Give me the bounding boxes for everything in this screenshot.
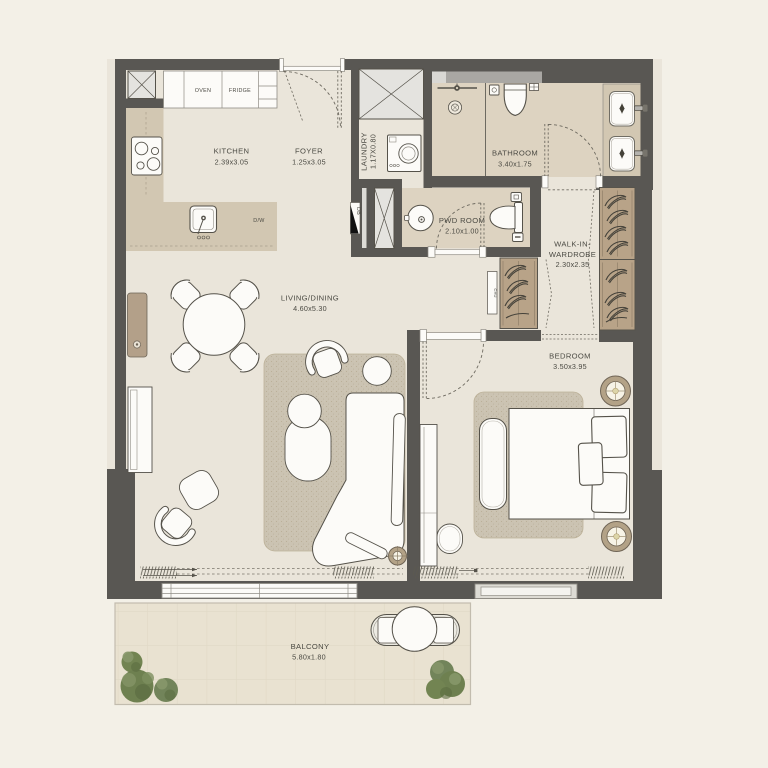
svg-text:KITCHEN: KITCHEN xyxy=(214,147,250,156)
svg-text:WARDROBE: WARDROBE xyxy=(549,250,596,259)
svg-text:LIVING/DINING: LIVING/DINING xyxy=(281,294,339,303)
svg-text:3.40x1.75: 3.40x1.75 xyxy=(498,160,532,169)
svg-text:1.17X0.80: 1.17X0.80 xyxy=(369,134,378,169)
svg-text:2.10x1.00: 2.10x1.00 xyxy=(445,227,479,236)
svg-text:DB: DB xyxy=(355,207,361,215)
svg-text:OVEN: OVEN xyxy=(195,88,211,94)
svg-text:5.80x1.80: 5.80x1.80 xyxy=(292,653,326,662)
svg-text:4.60x5.30: 4.60x5.30 xyxy=(293,304,327,313)
svg-text:1.25x3.05: 1.25x3.05 xyxy=(292,158,326,167)
svg-text:CHU: CHU xyxy=(493,288,498,297)
svg-text:LAUNDRY: LAUNDRY xyxy=(360,132,369,171)
svg-text:PWD ROOM: PWD ROOM xyxy=(439,216,485,225)
svg-text:3.50x3.95: 3.50x3.95 xyxy=(553,362,587,371)
svg-text:2.39x3.05: 2.39x3.05 xyxy=(215,158,249,167)
svg-text:FRIDGE: FRIDGE xyxy=(229,88,251,94)
svg-text:D/W: D/W xyxy=(253,218,265,224)
svg-text:WALK-IN-: WALK-IN- xyxy=(554,240,591,249)
svg-text:FOYER: FOYER xyxy=(295,147,323,156)
svg-text:BATHROOM: BATHROOM xyxy=(492,149,538,158)
svg-text:BALCONY: BALCONY xyxy=(291,642,330,651)
svg-text:2.30x2.35: 2.30x2.35 xyxy=(556,260,590,269)
svg-text:BEDROOM: BEDROOM xyxy=(549,352,591,361)
